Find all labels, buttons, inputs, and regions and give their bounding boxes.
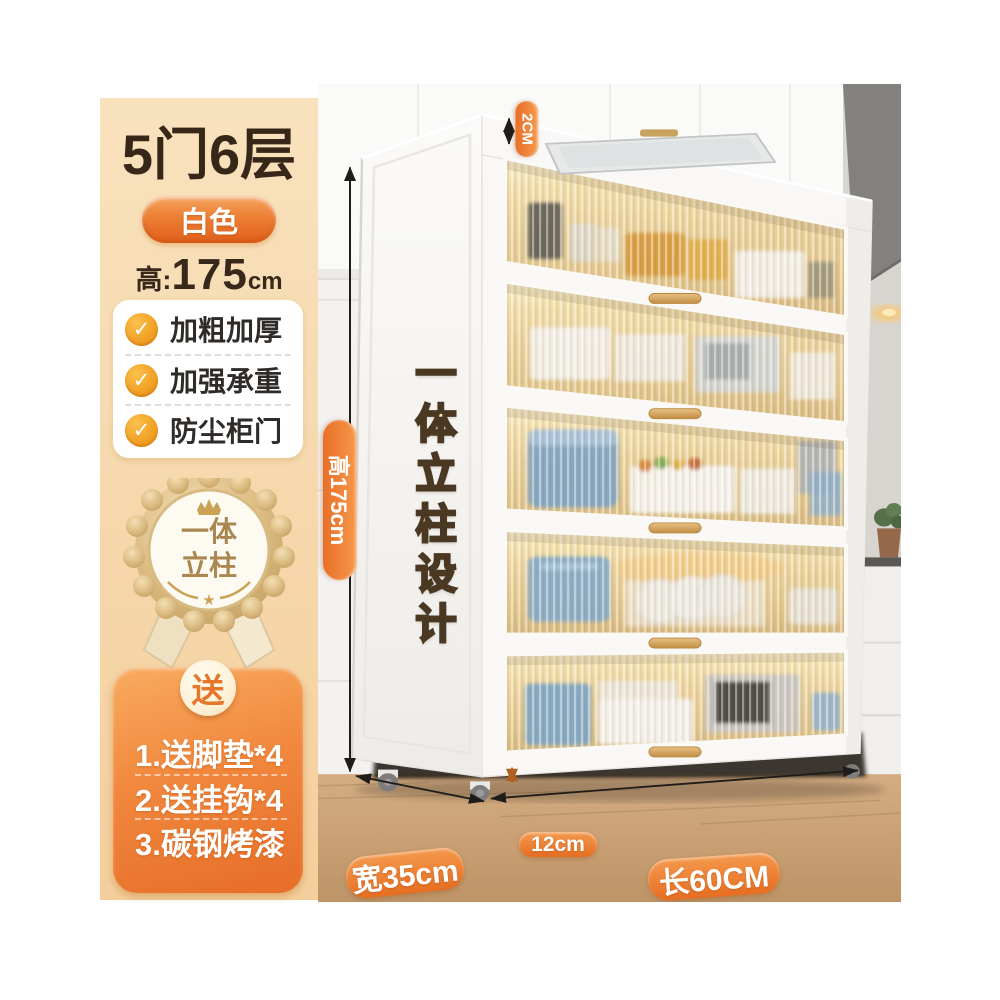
gift-items: 1.送脚垫*4 2.送挂钩*4 3.碳钢烤漆 [135,730,287,862]
gift-badge: 送 [180,660,236,716]
top-gap-label: 2CM [515,101,538,157]
kitchen-scene-photo: 一体立柱设计 高175cm 2CM 12cm 宽35cm 长60CM [318,84,901,902]
check-icon: ✓ [125,414,158,447]
door-handle [649,293,701,303]
gift-item: 2.送挂钩*4 [135,774,287,818]
length-dimension-label: 长60CM [647,851,782,901]
feature-row: ✓ 防尘柜门 [125,404,291,454]
medal-star-icon: ★ [202,592,215,609]
product-image: 5门6层 白色 高:175cm ✓ 加粗加厚 ✓ 加强承重 ✓ 防尘柜门 [0,0,1000,1000]
medal-badge: 一体 立柱 ★ [100,478,318,678]
flip-door-4 [505,530,846,634]
medal-text-line2: 立柱 [181,549,237,581]
info-sidebar: 5门6层 白色 高:175cm ✓ 加粗加厚 ✓ 加强承重 ✓ 防尘柜门 [100,98,318,900]
medal-text-line1: 一体 [181,516,238,547]
height-dimension-label: 高175cm [323,420,357,580]
door-handle [649,409,701,419]
side-panel-slogan: 一体立柱设计 [402,352,462,682]
feature-list: ✓ 加粗加厚 ✓ 加强承重 ✓ 防尘柜门 [113,300,303,458]
height-prefix: 高: [135,265,171,295]
height-unit: cm [248,268,283,295]
height-value: 175 [171,250,247,299]
flip-door-5 [505,651,846,753]
color-badge-label: 白色 [180,199,238,241]
gift-badge-label: 送 [192,664,225,712]
gift-card: 送 1.送脚垫*4 2.送挂钩*4 3.碳钢烤漆 [113,668,303,893]
gift-item: 1.送脚垫*4 [135,730,287,774]
check-icon: ✓ [125,313,158,346]
door-handle [649,638,701,648]
door-handle [649,747,701,757]
feature-label: 加粗加厚 [170,309,282,349]
color-badge: 白色 [142,196,276,243]
height-spec: 高:175cm [100,250,318,300]
feature-row: ✓ 加粗加厚 [125,304,291,354]
gift-item: 3.碳钢烤漆 [135,818,287,862]
door-handle [649,523,701,533]
feature-row: ✓ 加强承重 [125,354,291,404]
product-title: 5门6层 [100,110,318,191]
feature-label: 防尘柜门 [170,410,282,450]
check-icon: ✓ [125,364,158,397]
bottom-gap-label: 12cm [519,832,597,857]
feature-label: 加强承重 [170,360,282,400]
